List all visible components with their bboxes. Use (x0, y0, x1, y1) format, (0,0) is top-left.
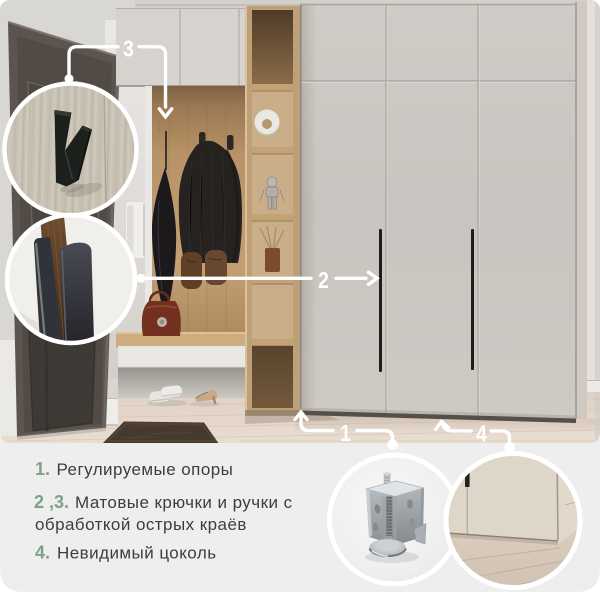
svg-text:1: 1 (340, 422, 351, 447)
svg-text:обработкой острых краёв: обработкой острых краёв (35, 515, 247, 534)
svg-text:1.Регулируемые опоры: 1.Регулируемые опоры (35, 459, 233, 479)
svg-text:4.Невидимый цоколь: 4.Невидимый цоколь (35, 542, 217, 562)
svg-text:3: 3 (123, 37, 134, 62)
svg-text:4: 4 (476, 422, 487, 447)
svg-text:2: 2 (318, 269, 329, 294)
